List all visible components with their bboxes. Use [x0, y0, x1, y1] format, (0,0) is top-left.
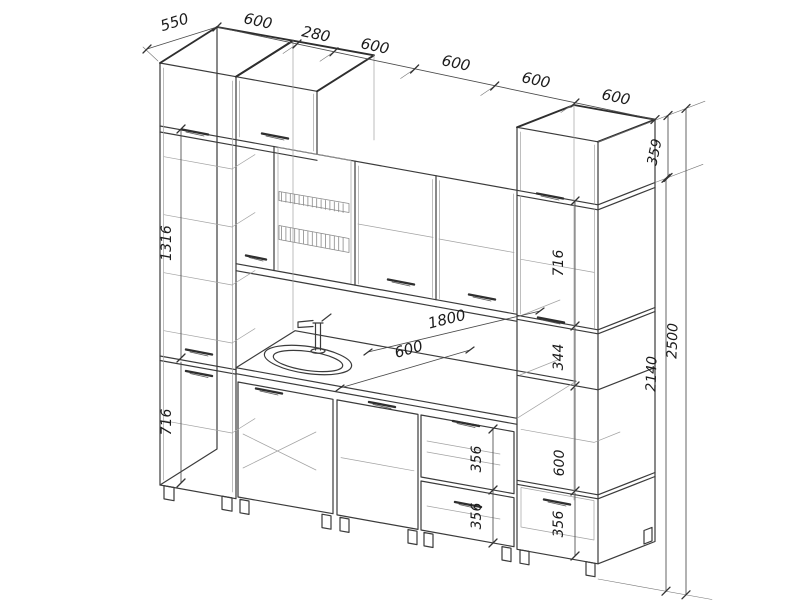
dim-356-lower-label: 356 — [469, 503, 485, 530]
dim-chain-top — [217, 27, 655, 120]
dim-line-550 — [147, 27, 217, 49]
tall-right-344-bottom — [517, 368, 655, 390]
tall-left-door-seam — [160, 356, 236, 374]
dim-600-1-label: 600 — [242, 9, 274, 33]
cabinet-linework — [160, 27, 655, 577]
dim-356-right-label: 356 — [551, 511, 567, 538]
tall-left-box-seam — [160, 126, 236, 146]
dim-2140-label: 2140 — [643, 356, 660, 392]
tall-right-600-bottom — [517, 473, 655, 499]
kitchen-technical-drawing: 550 600 280 600 600 600 600 1800 600 131… — [0, 0, 800, 600]
tall-left-top-face — [160, 27, 293, 77]
top-faces — [160, 27, 655, 142]
dim-716-right-label: 716 — [551, 250, 567, 277]
dim-716-left-label: 716 — [159, 409, 175, 436]
dimension-labels: 550 600 280 600 600 600 600 1800 600 131… — [158, 9, 681, 537]
sink-base-door — [238, 382, 333, 514]
base-drawer-1 — [421, 415, 514, 494]
dim-600-depth-label: 600 — [392, 337, 424, 362]
upper-box-600 — [236, 77, 317, 161]
dish-rack-lower-wires — [282, 227, 344, 251]
dimension-lines — [143, 27, 712, 600]
drawing-canvas: 550 600 280 600 600 600 600 1800 600 131… — [0, 0, 800, 600]
dim-1316-label: 1316 — [159, 225, 175, 261]
dim-356-upper-label: 356 — [469, 446, 485, 473]
sink-outer-rim — [263, 341, 354, 380]
wall-cabinet-door-1 — [355, 176, 436, 307]
tall-right-box-bottom — [517, 183, 655, 210]
dish-racks — [279, 192, 349, 253]
plinth-feet — [164, 486, 652, 577]
dim-600-3-label: 600 — [440, 51, 472, 75]
sink-inner-bowl — [272, 347, 344, 376]
dim-1800-label: 1800 — [426, 306, 467, 333]
dim-600-5-label: 600 — [600, 85, 632, 109]
dim-600-right-label: 600 — [552, 450, 568, 477]
dim-2500-label: 2500 — [664, 323, 681, 359]
handles — [182, 130, 570, 509]
upper-box-top-face — [236, 41, 374, 92]
dim-600-4-label: 600 — [520, 68, 552, 92]
mid-base-door — [337, 400, 418, 530]
tall-right-top-face — [517, 105, 655, 142]
dim-550-label: 550 — [158, 9, 191, 35]
dim-359-label: 359 — [644, 137, 665, 167]
dim-344-label: 344 — [551, 344, 567, 371]
